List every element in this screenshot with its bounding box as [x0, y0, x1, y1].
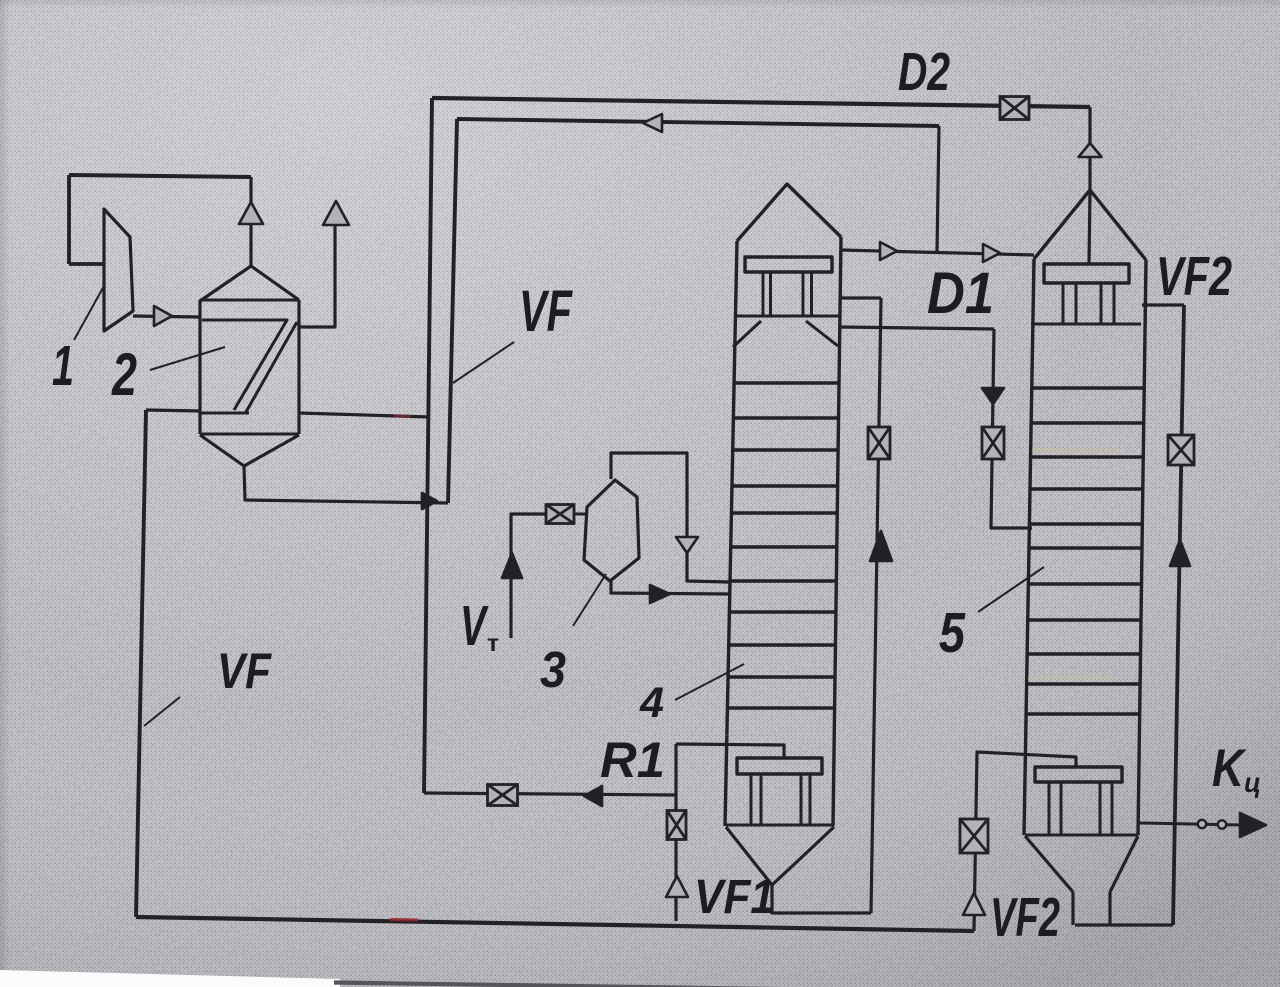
- svg-text:VF: VF: [217, 643, 272, 699]
- svg-text:R1: R1: [600, 732, 665, 788]
- svg-text:D2: D2: [898, 42, 950, 102]
- svg-text:K: K: [1212, 739, 1247, 798]
- svg-text:т: т: [487, 630, 499, 656]
- svg-text:ц: ц: [1244, 767, 1261, 798]
- svg-text:1: 1: [52, 334, 74, 398]
- svg-text:2: 2: [111, 341, 137, 408]
- svg-text:VF1: VF1: [694, 871, 775, 924]
- svg-text:3: 3: [540, 641, 566, 698]
- svg-text:VF2: VF2: [1156, 245, 1232, 307]
- svg-text:5: 5: [939, 601, 966, 665]
- svg-text:V: V: [460, 594, 489, 658]
- svg-text:D1: D1: [927, 261, 994, 326]
- svg-text:VF2: VF2: [990, 886, 1060, 948]
- svg-text:VF: VF: [519, 279, 573, 344]
- svg-text:4: 4: [639, 679, 664, 727]
